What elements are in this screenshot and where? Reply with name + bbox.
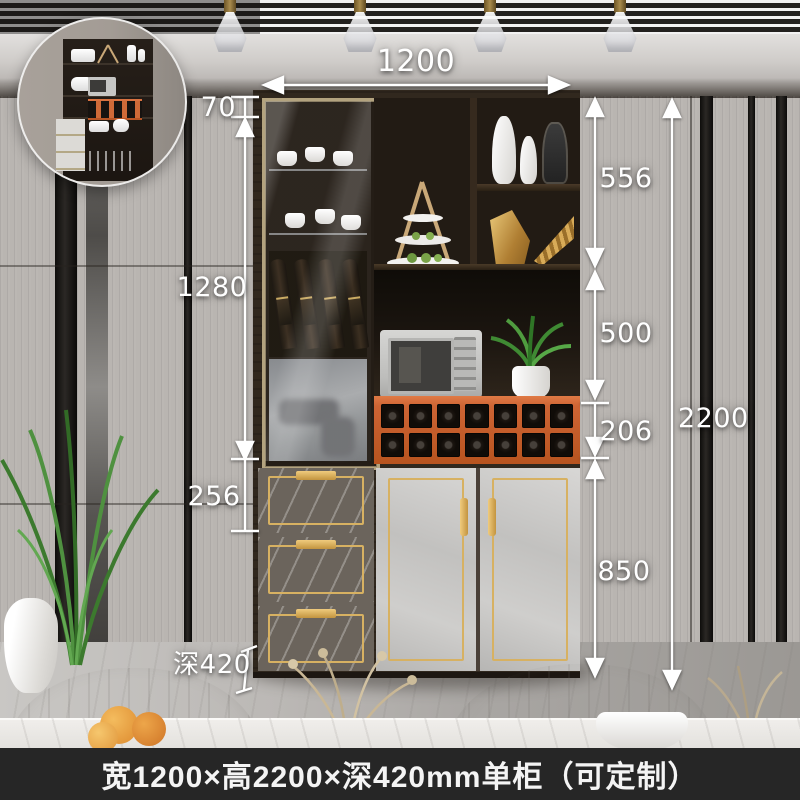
pendant-light-1 <box>212 0 248 52</box>
white-vase-small <box>520 136 537 184</box>
drawer-handle <box>296 471 336 480</box>
gold-wing-ornament <box>534 216 574 266</box>
dim-label-total-height: 2200 <box>678 405 748 432</box>
dim-label-rack-section: 206 <box>596 418 656 445</box>
inset-plates <box>89 121 109 132</box>
shelf-divider <box>470 98 477 270</box>
door-gold-trim <box>388 478 464 661</box>
inset-wine-rack <box>88 99 142 120</box>
wine-slot <box>522 404 545 428</box>
teacup <box>277 151 297 166</box>
wine-bottle <box>269 258 297 349</box>
wine-slot <box>465 433 488 457</box>
lamp-cap <box>614 0 626 13</box>
lamp-cap <box>484 0 496 13</box>
wine-slot <box>437 404 460 428</box>
wine-slot <box>550 433 573 457</box>
fruit <box>132 712 166 746</box>
inset-tiered-stand <box>95 43 121 65</box>
wire-vase <box>542 122 568 184</box>
teacup <box>305 147 325 162</box>
wine-slot <box>465 404 488 428</box>
inset-drawers <box>56 119 85 171</box>
wine-bottle <box>293 258 321 349</box>
wine-bottle <box>341 258 369 349</box>
wall-glass-strip <box>748 96 755 656</box>
drawer-handle <box>296 609 336 618</box>
pendant-light-2 <box>342 0 378 52</box>
teacup <box>285 213 305 228</box>
wall-seam <box>0 265 255 267</box>
door-handle-right <box>488 498 496 536</box>
teacup <box>315 209 335 224</box>
lamp-bulb <box>342 12 378 52</box>
wine-bottle-shelf <box>269 251 367 357</box>
mirror-panel <box>269 359 367 461</box>
plant-pot <box>512 366 550 398</box>
lamp-cap <box>354 0 366 13</box>
inset-vase <box>138 49 145 62</box>
lamp-cap <box>224 0 236 13</box>
dim-label-shelf-section: 556 <box>596 165 656 192</box>
cabinet-door-right <box>480 468 580 671</box>
caption-text: 宽1200×高2200×深420mm单柜（可定制） <box>102 752 699 796</box>
caption-bar: 宽1200×高2200×深420mm单柜（可定制） <box>0 748 800 800</box>
potted-plant-leaves <box>485 312 575 372</box>
door-handle-left <box>460 498 468 536</box>
microwave <box>380 330 482 398</box>
wine-slot <box>522 433 545 457</box>
dim-label-base-section: 850 <box>594 558 654 585</box>
gold-sculpture <box>490 210 530 266</box>
drawer-1 <box>258 468 374 533</box>
wine-slot <box>550 404 573 428</box>
door-gold-trim <box>492 478 568 661</box>
wine-slot <box>409 433 432 457</box>
mirror-reflection <box>321 417 355 457</box>
lamp-bulb <box>212 12 248 52</box>
cabinet <box>253 90 580 678</box>
pendant-light-3 <box>472 0 508 52</box>
drawer-gold-trim <box>268 545 364 594</box>
inset-microwave <box>88 77 116 96</box>
white-vase-tall <box>492 116 516 184</box>
dim-label-mirror-section: 256 <box>170 483 258 510</box>
microwave-window <box>388 338 454 394</box>
pendant-light-4 <box>602 0 638 52</box>
drawer-handle <box>296 540 336 549</box>
wine-slot <box>494 404 517 428</box>
detail-inset-circle <box>17 17 187 187</box>
lamp-bulb <box>602 12 638 52</box>
dim-label-glass-section: 1280 <box>166 274 258 301</box>
inset-dishes <box>71 49 95 62</box>
wall-seam <box>690 96 692 656</box>
glass-display-door <box>262 98 380 470</box>
teacup <box>333 151 353 166</box>
wall-glass-strip <box>700 96 713 656</box>
wine-slot <box>381 433 404 457</box>
inset-bowls <box>113 119 129 132</box>
glass-shelf <box>269 233 367 235</box>
tiered-stand <box>374 98 470 270</box>
lamp-bulb <box>472 12 508 52</box>
wall-glass-strip <box>776 96 787 656</box>
plant-vase <box>4 598 58 693</box>
wine-slot <box>494 433 517 457</box>
inset-vase <box>127 45 136 62</box>
shelf-board <box>477 184 580 191</box>
inset-wine-glasses <box>89 151 137 171</box>
wine-slot <box>409 404 432 428</box>
display-shelves <box>374 98 580 270</box>
wine-bottle <box>317 258 345 349</box>
drawer-2 <box>258 537 374 602</box>
dim-label-niche-section: 500 <box>596 320 656 347</box>
glass-shelf <box>269 169 367 171</box>
dim-label-width: 1200 <box>366 47 466 77</box>
teacup <box>341 215 361 230</box>
wine-rack <box>374 396 580 464</box>
wine-slot <box>381 404 404 428</box>
dim-label-top-gap: 70 <box>180 94 236 121</box>
product-image: 1200 70 1280 256 556 500 206 850 2200 深4… <box>0 0 800 800</box>
drawer-gold-trim <box>268 476 364 525</box>
microwave-controls <box>454 337 476 391</box>
wine-slot <box>437 433 460 457</box>
dim-label-depth: 深420 <box>162 652 262 678</box>
